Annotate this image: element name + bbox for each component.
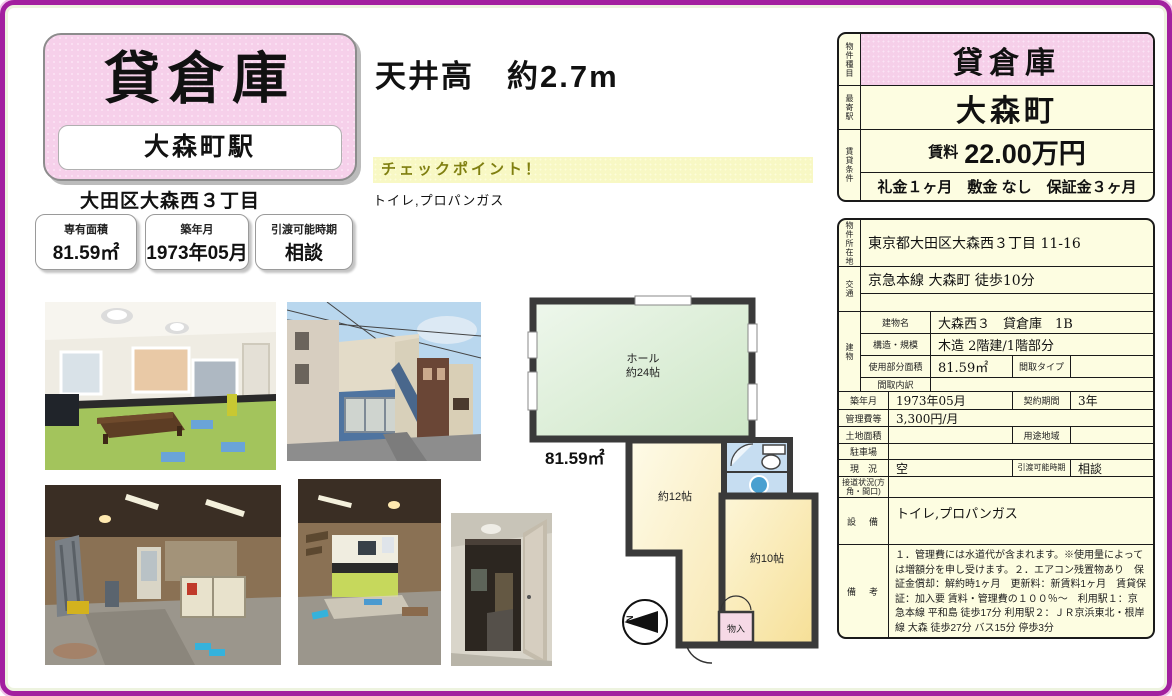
building-name-value: 大森西３ 貸倉庫 1B [931,312,1153,333]
summary-row-terms: 賃貸条件 賃料 22.00万円 礼金１ヶ月 敷金 なし 保証金３ヶ月 [839,129,1153,200]
photo-warehouse-interior-2 [298,479,441,665]
summary-type-value: 貸倉庫 [861,34,1153,85]
entrance-door-arc [687,647,712,663]
remarks-label: 備 考 [839,545,889,637]
detail-row-equipment: 設 備 トイレ,プロパンガス [839,497,1153,544]
detail-row-remarks: 備 考 １．管理費には水道代が含まれます。※使用量によっては増額分を申し受けます… [839,544,1153,637]
summary-type-label: 物件種目 [839,34,861,85]
equipment-label: 設 備 [839,498,889,544]
structure-label: 構造・規模 [861,334,931,355]
fee-label: 管理費等 [839,410,889,426]
building-name-label: 建物名 [861,312,931,333]
handover-label: 引渡可能時期 [1013,460,1071,476]
photo-interior-green-room [45,302,276,470]
location-value: 東京都大田区大森西３丁目 11-16 [861,220,1153,266]
sink-icon [750,476,768,494]
detail-row-access: 交通 京急本線 大森町 徒歩10分 [839,266,1153,311]
property-type-title: 貸倉庫 [45,35,355,123]
built-value: 1973年05月 [889,392,1013,409]
area-value: 81.59㎡ [931,356,1013,377]
zoning-value [1071,427,1153,443]
detail-row-building: 建物 建物名 大森西３ 貸倉庫 1B 構造・規模 木造 2階建/1階部分 使用部… [839,311,1153,391]
checkpoint-bar: チェックポイント！ [373,157,813,183]
svg-text:N: N [625,616,635,623]
checkpoint-text: トイレ,プロパンガス [373,190,504,209]
building-name-row: 建物名 大森西３ 貸倉庫 1B [861,312,1153,333]
station-name: 大森町駅 [144,133,256,161]
floorplan-hall-label: ホール [627,352,660,365]
summary-station-value: 大森町 [861,86,1153,129]
floor-plan: ホール 約24帖 約12帖 約10帖 物入 N 81.59㎡ [517,290,837,670]
stat-handover-value: 相談 [256,238,352,265]
photo-exterior-building [287,302,481,461]
land-label: 土地面積 [839,427,889,443]
summary-terms-label: 賃貸条件 [839,130,861,200]
stat-handover: 引渡可能時期 相談 [255,214,353,270]
summary-row-station: 最寄駅 大森町 [839,85,1153,129]
station-pill: 大森町駅 [58,125,342,170]
rent-value: 22.00万円 [964,132,1086,171]
detail-row-road: 接道状況(方角・間口) [839,476,1153,497]
address-line: 大田区大森西３丁目 [25,186,315,213]
contract-label: 契約期間 [1013,392,1071,409]
detail-row-fee: 管理費等 3,300円/月 [839,409,1153,426]
summary-table: 物件種目 貸倉庫 最寄駅 大森町 賃貸条件 賃料 22.00万円 礼金１ヶ月 敷… [837,32,1155,202]
summary-fees-line: 礼金１ヶ月 敷金 なし 保証金３ヶ月 [861,173,1153,200]
area-label: 使用部分面積 [861,356,931,377]
road-value [889,477,1153,497]
detail-row-location: 物件所在地 東京都大田区大森西３丁目 11-16 [839,220,1153,266]
ceiling-height-text: 天井高 約2.7m [375,51,619,96]
summary-station-label: 最寄駅 [839,86,861,129]
detail-row-built: 築年月 1973年05月 契約期間 3年 [839,391,1153,409]
structure-value: 木造 2階建/1階部分 [931,334,1153,355]
photo-warehouse-interior-1 [45,485,281,665]
stat-area-value: 81.59㎡ [36,238,136,265]
parking-value [889,444,1153,459]
detail-table: 物件所在地 東京都大田区大森西３丁目 11-16 交通 京急本線 大森町 徒歩1… [837,218,1155,639]
floorplan-room10-label: 約10帖 [750,551,784,565]
summary-row-type: 物件種目 貸倉庫 [839,34,1153,85]
land-value [889,427,1013,443]
built-label: 築年月 [839,392,889,409]
detail-row-parking: 駐車場 [839,443,1153,459]
floorplan-total-area: 81.59㎡ [545,448,605,468]
madori-type-label: 間取タイプ [1013,356,1071,377]
madori-breakdown-row: 間取内訳 [861,377,1153,391]
stat-built-value: 1973年05月 [146,238,248,265]
stat-built: 築年月 1973年05月 [145,214,249,270]
detail-row-land: 土地面積 用途地域 [839,426,1153,443]
access-value: 京急本線 大森町 徒歩10分 [861,267,1153,294]
madori-breakdown-value [931,378,1153,391]
floorplan-closet-label: 物入 [727,623,745,634]
access-label: 交通 [839,267,861,311]
contract-value: 3年 [1071,392,1153,409]
madori-type-value [1071,356,1153,377]
parking-label: 駐車場 [839,444,889,459]
access-value-2 [861,294,1153,311]
road-label: 接道状況(方角・間口) [839,477,889,497]
handover-value: 相談 [1071,460,1153,476]
compass-icon: N [623,600,667,644]
summary-rent-line: 賃料 22.00万円 [861,130,1153,173]
fee-value: 3,300円/月 [889,410,1153,426]
stat-area-label: 専有面積 [36,221,136,237]
structure-row: 構造・規模 木造 2階建/1階部分 [861,333,1153,355]
floorplan-room12-label: 約12帖 [658,489,692,503]
stat-built-label: 築年月 [146,221,248,237]
stat-handover-label: 引渡可能時期 [256,221,352,237]
stat-area: 専有面積 81.59㎡ [35,214,137,270]
building-label: 建物 [839,312,861,391]
location-label: 物件所在地 [839,220,861,266]
property-type-card: 貸倉庫 大森町駅 [43,33,357,181]
area-row: 使用部分面積 81.59㎡ 間取タイプ [861,355,1153,377]
toilet-icon [762,455,780,469]
rent-label: 賃料 [928,141,958,162]
remarks-value: １．管理費には水道代が含まれます。※使用量によっては増額分を申し受けます。２．エ… [889,545,1153,637]
detail-row-status: 現 況 空 引渡可能時期 相談 [839,459,1153,476]
status-label: 現 況 [839,460,889,476]
flyer-page: 貸倉庫 大森町駅 大田区大森西３丁目 専有面積 81.59㎡ 築年月 1973年… [0,0,1172,696]
status-value: 空 [889,460,1013,476]
floorplan-hall-size: 約24帖 [626,365,660,379]
zoning-label: 用途地域 [1013,427,1071,443]
madori-breakdown-label: 間取内訳 [861,378,931,391]
equipment-value: トイレ,プロパンガス [889,498,1153,544]
